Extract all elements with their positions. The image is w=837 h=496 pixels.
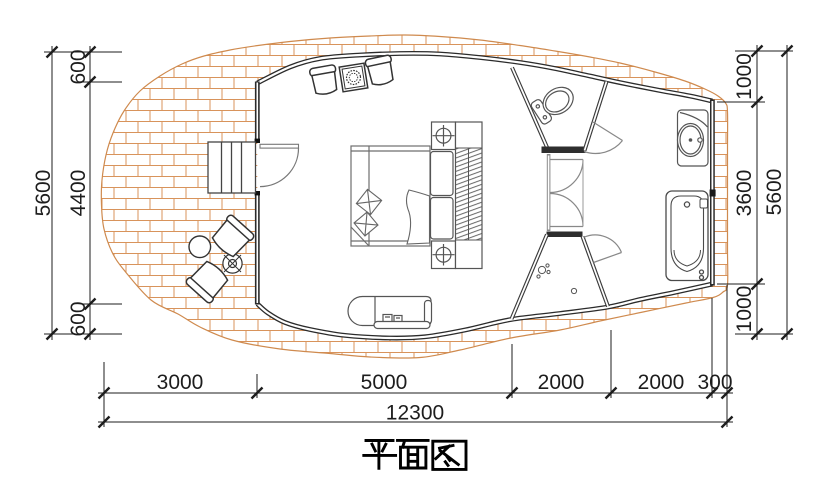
svg-text:4400: 4400 xyxy=(67,170,90,217)
svg-text:3600: 3600 xyxy=(733,170,756,217)
svg-text:5600: 5600 xyxy=(763,169,786,216)
svg-text:5600: 5600 xyxy=(32,170,55,217)
svg-text:2000: 2000 xyxy=(538,371,585,394)
svg-text:1000: 1000 xyxy=(733,286,756,333)
svg-text:600: 600 xyxy=(67,301,90,336)
svg-text:2000: 2000 xyxy=(638,371,685,394)
svg-text:12300: 12300 xyxy=(386,402,444,425)
svg-text:300: 300 xyxy=(697,371,732,394)
svg-text:5000: 5000 xyxy=(361,371,408,394)
svg-text:600: 600 xyxy=(67,49,90,84)
svg-text:3000: 3000 xyxy=(157,371,204,394)
svg-text:1000: 1000 xyxy=(733,53,756,100)
